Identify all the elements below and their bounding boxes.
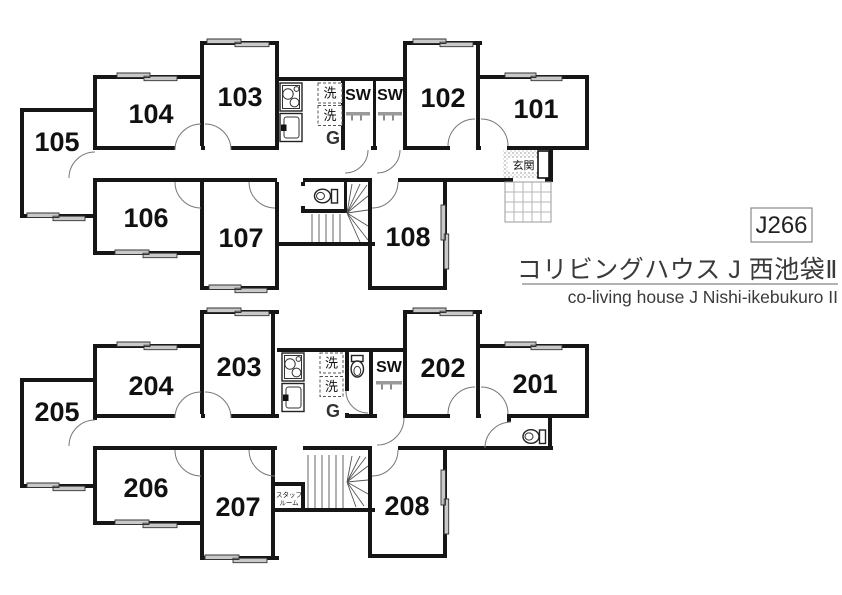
floor2-plan: 洗 洗 G SW スタッフ ルーム 201	[20, 308, 589, 563]
floor1-plan: 洗 洗 G SW SW 玄関 101 102 1	[20, 39, 589, 293]
room-108-label: 108	[385, 222, 430, 252]
room-206-label: 206	[123, 473, 168, 503]
entrance-tile-porch	[505, 182, 551, 222]
faucet-icon	[281, 125, 287, 132]
floorplan-page: 洗 洗 G SW SW 玄関 101 102 1	[0, 0, 842, 595]
laundry-f2: 洗 洗 G	[320, 353, 343, 421]
toilet-icon-f1	[315, 189, 338, 203]
faucet-icon	[283, 395, 289, 402]
floor1-door-swing-arcs	[69, 119, 544, 215]
closet-sw-f2: SW	[376, 359, 403, 390]
closet-sw-label: SW	[377, 87, 404, 104]
closet-sw-label: SW	[376, 359, 403, 376]
kitchen-counter-f2	[282, 353, 304, 412]
entrance-label: 玄関	[513, 158, 535, 172]
room-104-label: 104	[128, 99, 173, 129]
front-door-leaf	[538, 151, 549, 178]
gas-meter-icon: G	[326, 128, 340, 148]
room-204-label: 204	[128, 371, 173, 401]
building-title-ja: コリビングハウス J 西池袋Ⅱ	[517, 256, 838, 284]
plan-code: J266	[755, 212, 807, 239]
washer-label: 洗	[323, 108, 336, 123]
room-101-label: 101	[513, 94, 558, 124]
staff-room-label: ルーム	[279, 499, 299, 507]
room-105-label: 105	[34, 127, 79, 157]
washer-label: 洗	[325, 379, 338, 394]
hanger-rail-icon	[376, 381, 402, 385]
closet-sw-label: SW	[345, 87, 372, 104]
staff-room-label: スタッフ	[276, 490, 302, 499]
toilet-icon-f2-right	[523, 430, 546, 444]
title-block: J266 コリビングハウス J 西池袋Ⅱ co-living house J N…	[517, 208, 838, 307]
toilet-icon-f2-mid	[351, 356, 363, 378]
washer-label: 洗	[325, 356, 338, 371]
floorplan-canvas: 洗 洗 G SW SW 玄関 101 102 1	[0, 0, 842, 595]
rail-hooks	[352, 116, 393, 121]
gas-meter-icon: G	[326, 401, 340, 421]
washer-label: 洗	[323, 86, 336, 101]
room-201-label: 201	[512, 369, 557, 399]
building-title-en: co-living house J Nishi-ikebukuro II	[568, 287, 838, 307]
staff-room: スタッフ ルーム	[276, 490, 302, 507]
rail-hooks	[382, 385, 391, 390]
room-103-label: 103	[217, 82, 262, 112]
room-203-label: 203	[216, 352, 261, 382]
room-208-label: 208	[384, 491, 429, 521]
room-202-label: 202	[420, 353, 465, 383]
hanger-rail-icon	[346, 112, 370, 116]
room-107-label: 107	[218, 223, 263, 253]
room-102-label: 102	[420, 83, 465, 113]
floor2-walls	[20, 310, 589, 560]
room-106-label: 106	[123, 203, 168, 233]
hanger-rail-icon	[378, 112, 402, 116]
room-205-label: 205	[34, 397, 79, 427]
room-207-label: 207	[215, 492, 260, 522]
laundry-f1: 洗 洗 G	[318, 83, 342, 148]
kitchen-counter-f1	[280, 83, 302, 142]
staircase-f2	[308, 455, 368, 508]
